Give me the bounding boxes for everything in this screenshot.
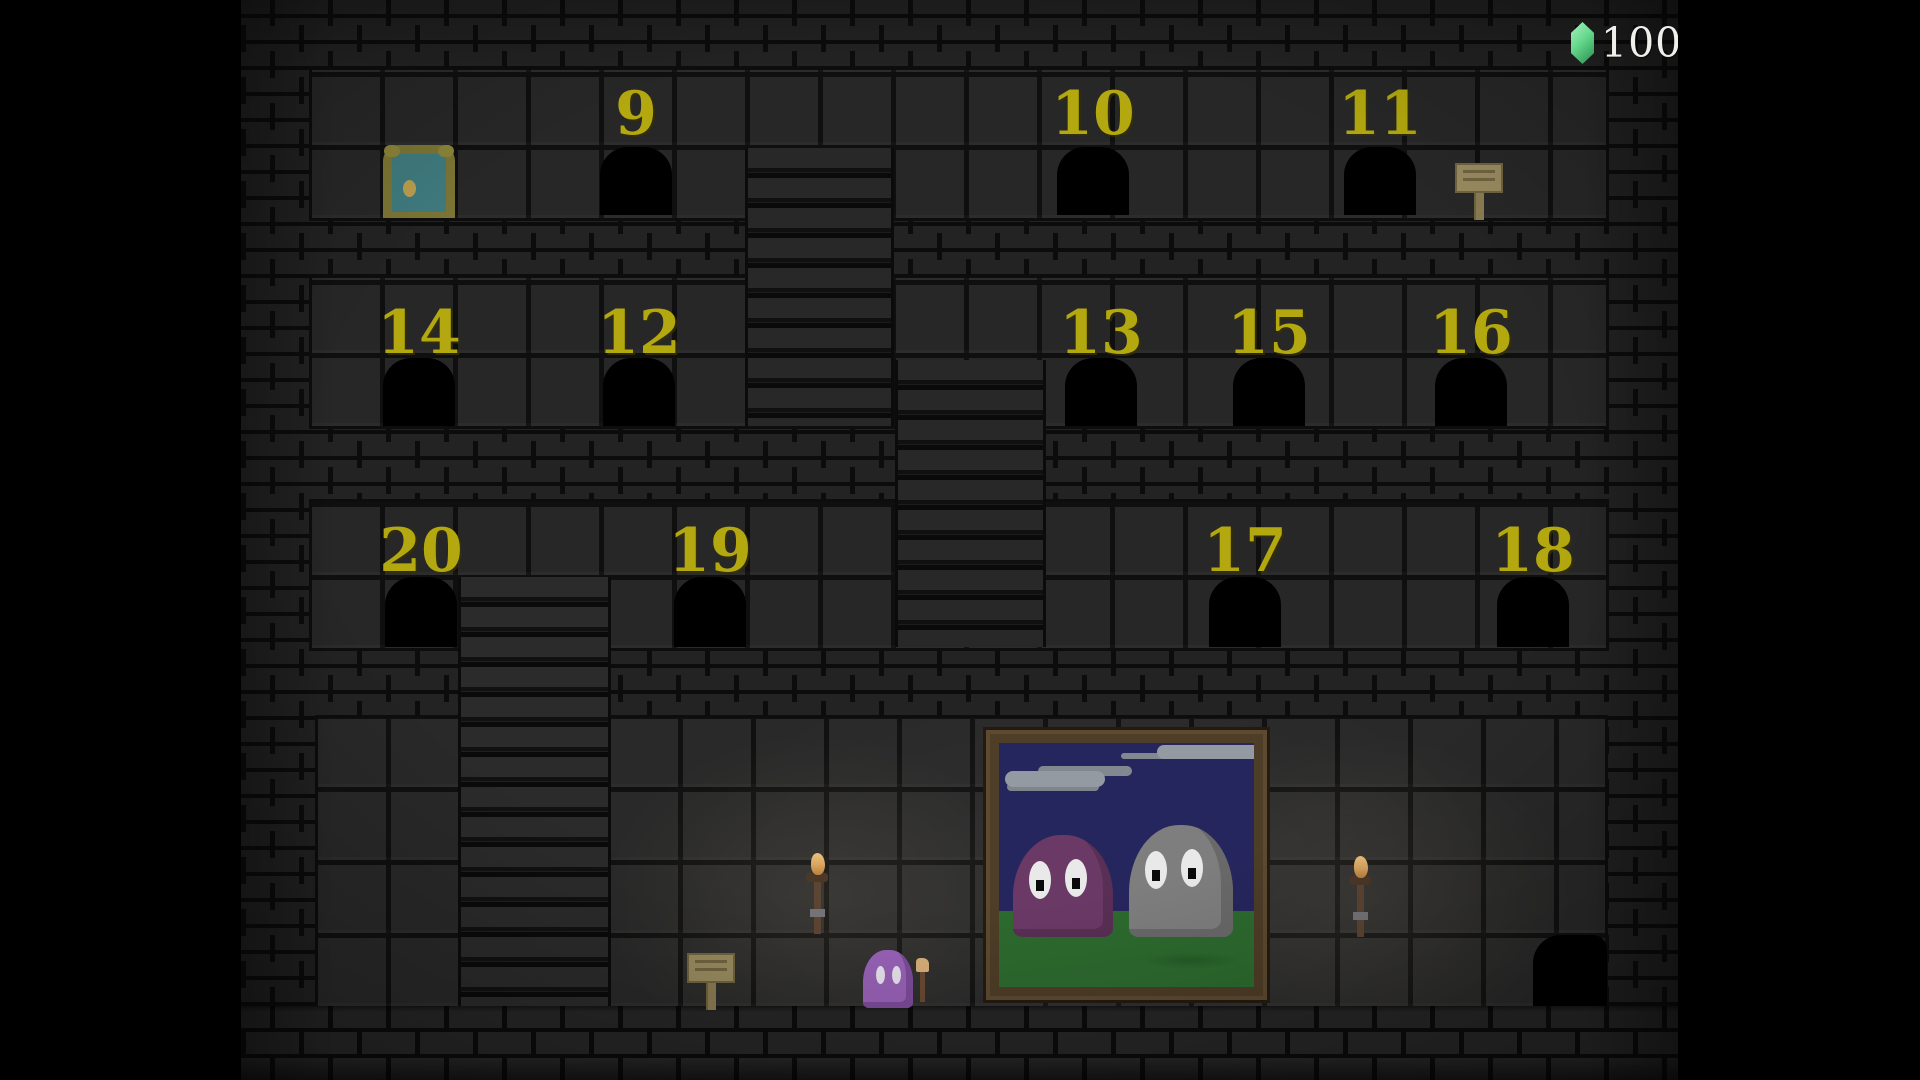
entrance-door[interactable] [383,145,455,218]
door-frame-corner [438,145,454,157]
door-number-19: 19 [655,521,765,581]
painting-canvas [999,743,1254,987]
door-number-12: 12 [584,303,694,363]
rupee-gem-icon [1571,22,1594,64]
wooden-sign-lobby[interactable] [687,953,735,1010]
door-number-20: 20 [366,521,476,581]
door-number-9: 9 [581,84,691,144]
player-eye-icon [892,966,901,984]
player-eye-icon [876,966,885,984]
torch-icon-right [1347,856,1373,948]
torch-bracket [810,909,825,917]
rupee-count: 100 [1601,23,1678,64]
ghost-eye-icon [1065,859,1087,897]
purple-ghost-figure [1013,835,1113,937]
doorway-level-18[interactable] [1497,577,1569,647]
door-number-10: 10 [1038,84,1148,144]
door-frame-corner [384,145,400,157]
torch-stick [814,882,821,934]
door-number-14: 14 [364,303,474,363]
torch-bracket [1353,912,1368,920]
player-ghost-character [863,950,913,1008]
staircase-floor1-floor2[interactable] [745,148,894,426]
gray-ghost-figure [1129,825,1233,937]
doorway-level-17[interactable] [1209,577,1281,647]
sign-board [1455,163,1503,193]
game-screen: 9 10 11 14 12 13 15 16 20 19 17 18 [0,0,1920,1080]
doorway-level-14[interactable] [383,358,455,426]
cloud-icon [1157,745,1254,759]
ghost-eye-icon [1145,851,1167,889]
torch-pickup-item[interactable] [914,958,930,1006]
pickup-head [916,958,929,972]
doorway-level-19[interactable] [674,577,746,647]
sign-board [687,953,735,983]
pickup-stem [920,972,925,1002]
staircase-floor3-lobby[interactable] [458,577,611,1006]
ghost-eye-icon [1181,849,1203,887]
doorway-level-16[interactable] [1435,358,1507,426]
exit-doorway[interactable] [1533,935,1607,1006]
wooden-sign-floor1[interactable] [1455,163,1503,220]
sign-post [706,983,716,1010]
sign-post [1474,193,1484,220]
cloud-icon [1005,771,1105,787]
doorway-level-10[interactable] [1057,147,1129,215]
door-number-11: 11 [1325,84,1435,144]
doorway-level-11[interactable] [1344,147,1416,215]
doorway-level-15[interactable] [1233,358,1305,426]
door-number-16: 16 [1416,303,1526,363]
door-knob-icon [403,180,416,197]
door-number-15: 15 [1214,303,1324,363]
game-viewport[interactable]: 9 10 11 14 12 13 15 16 20 19 17 18 [241,0,1678,1080]
doorway-level-20[interactable] [385,577,457,647]
torch-stick [1357,885,1364,937]
ghost-eye-icon [1029,861,1051,899]
sign-text-lines [695,960,727,976]
door-number-13: 13 [1046,303,1156,363]
sign-text-lines [1463,170,1495,186]
staircase-floor2-floor3[interactable] [895,360,1046,647]
torch-icon-left [804,853,830,945]
flame-icon [811,853,825,875]
hud-currency: 100 [1571,18,1678,68]
doorway-level-9[interactable] [600,147,672,215]
door-number-17: 17 [1190,521,1300,581]
flame-icon [1354,856,1368,878]
ground-floor-bricks [241,1006,1678,1080]
ghost-painting [983,727,1270,1003]
doorway-level-12[interactable] [603,358,675,426]
door-number-18: 18 [1478,521,1588,581]
doorway-level-13[interactable] [1065,358,1137,426]
